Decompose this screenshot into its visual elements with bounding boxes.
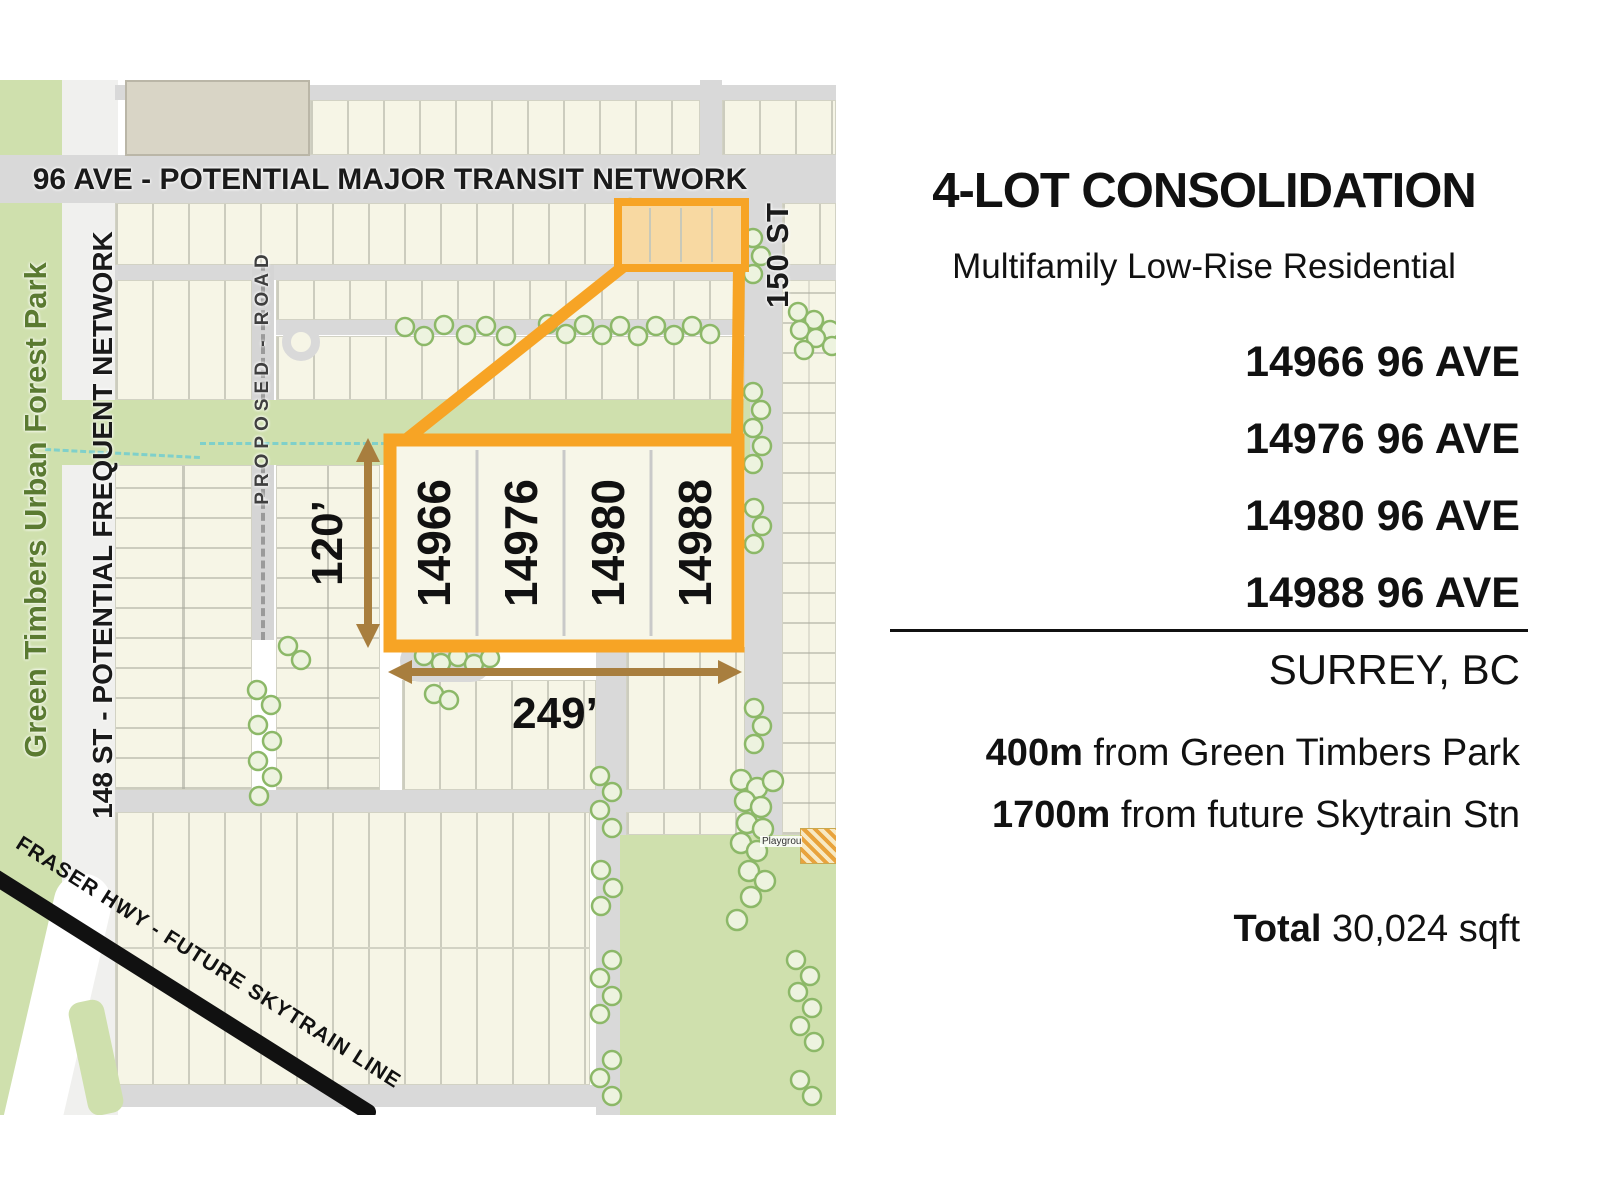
lot-callout: 14966 14976 14980 14988 bbox=[390, 202, 745, 646]
divider-rule bbox=[890, 629, 1528, 632]
site-map: Playground bbox=[0, 80, 836, 1115]
distance-skytrain-value: 1700m bbox=[992, 794, 1110, 836]
fraser-hwy-label: FRASER HWY - FUTURE SKYTRAIN LINE bbox=[12, 832, 405, 1093]
info-panel: 4-LOT CONSOLIDATION Multifamily Low-Rise… bbox=[878, 0, 1530, 1200]
lot-number-14988: 14988 bbox=[669, 479, 721, 607]
proposed-road-label: PROPOSED - ROAD bbox=[251, 227, 275, 527]
148-st-label: 148 ST - POTENTIAL FREQUENT NETWORK bbox=[86, 215, 120, 835]
playground-icon bbox=[800, 828, 836, 864]
page-title: 4-LOT CONSOLIDATION bbox=[878, 163, 1530, 219]
address-3: 14980 96 AVE bbox=[1245, 492, 1520, 541]
fraser-hwy-skytrain-line: FRASER HWY - FUTURE SKYTRAIN LINE bbox=[0, 832, 405, 1112]
page-subtitle: Multifamily Low-Rise Residential bbox=[878, 247, 1530, 287]
96-ave-label: 96 AVE - POTENTIAL MAJOR TRANSIT NETWORK bbox=[30, 162, 750, 198]
width-dimension-label: 249’ bbox=[512, 689, 598, 738]
distance-park-value: 400m bbox=[986, 732, 1083, 774]
lot-number-14966: 14966 bbox=[408, 479, 460, 607]
address-1: 14966 96 AVE bbox=[1245, 338, 1520, 387]
city-label: SURREY, BC bbox=[1269, 646, 1520, 694]
distance-skytrain-text: from future Skytrain Stn bbox=[1110, 794, 1520, 836]
distance-park: 400m from Green Timbers Park bbox=[986, 732, 1520, 775]
lot-number-14976: 14976 bbox=[495, 479, 547, 607]
total-area: Total 30,024 sqft bbox=[1233, 908, 1520, 951]
total-value: 30,024 sqft bbox=[1321, 908, 1520, 950]
green-timbers-park-label: Green Timbers Urban Forest Park bbox=[19, 230, 53, 790]
lot-number-14980: 14980 bbox=[582, 479, 634, 607]
distance-skytrain: 1700m from future Skytrain Stn bbox=[992, 794, 1520, 837]
150-st-label: 150 ST bbox=[761, 170, 795, 340]
flyer-page: Playground bbox=[0, 0, 1600, 1200]
total-label: Total bbox=[1233, 908, 1321, 950]
map-overlay: FRASER HWY - FUTURE SKYTRAIN LINE 14966 … bbox=[0, 80, 836, 1115]
depth-dimension-label: 120’ bbox=[303, 500, 352, 586]
address-2: 14976 96 AVE bbox=[1245, 415, 1520, 464]
playground-label: Playground bbox=[760, 836, 802, 847]
address-4: 14988 96 AVE bbox=[1245, 569, 1520, 618]
distance-park-text: from Green Timbers Park bbox=[1083, 732, 1520, 774]
